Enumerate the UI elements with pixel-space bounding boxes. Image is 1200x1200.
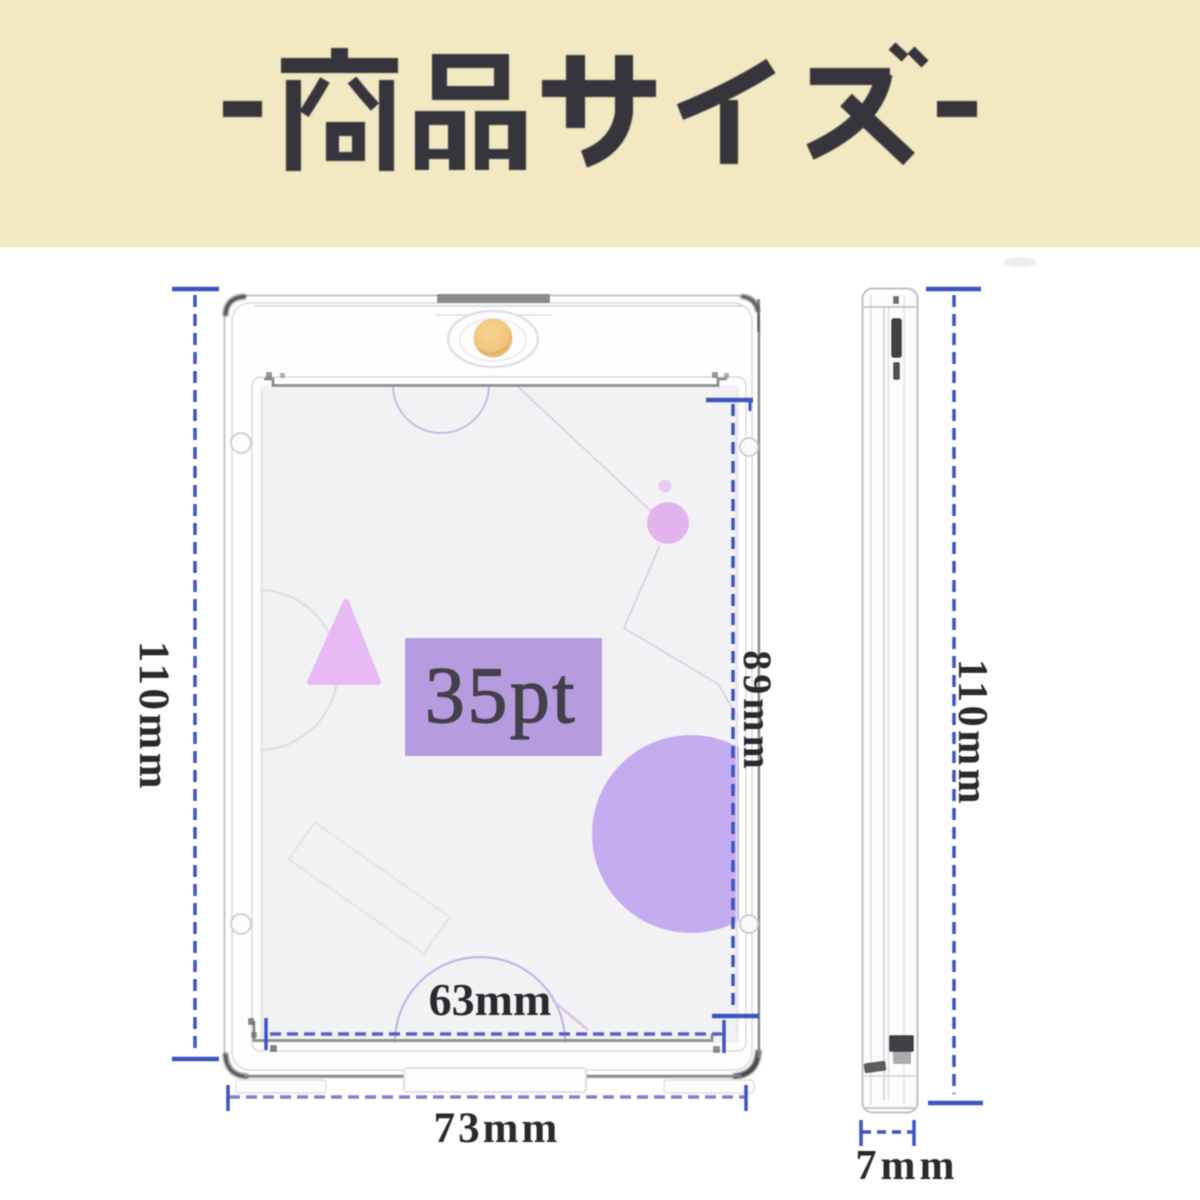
- svg-text:73mm: 73mm: [434, 1105, 561, 1152]
- svg-text:110mm: 110mm: [949, 659, 995, 807]
- svg-text:89mm: 89mm: [735, 650, 780, 773]
- svg-text:63mm: 63mm: [429, 974, 552, 1025]
- svg-text:7mm: 7mm: [856, 1143, 959, 1189]
- svg-text:35pt: 35pt: [425, 652, 577, 740]
- svg-text:110mm: 110mm: [130, 641, 177, 792]
